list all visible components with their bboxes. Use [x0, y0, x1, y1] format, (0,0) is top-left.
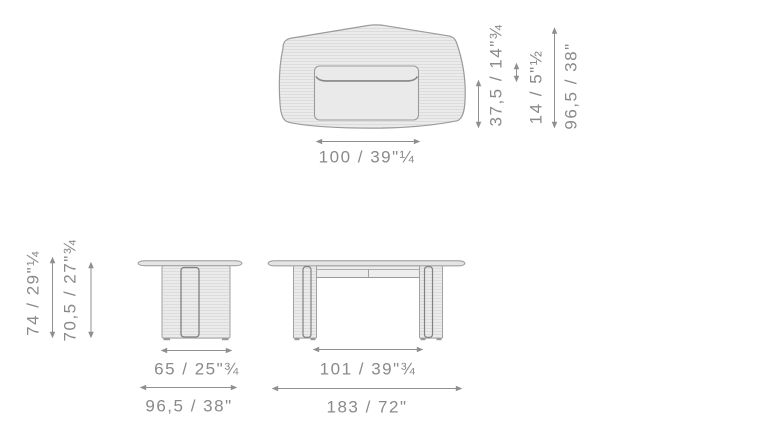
- leg-side-left: [294, 266, 317, 338]
- dim-label-base-width: 65 / 25"¾: [154, 361, 240, 378]
- foot-front-left: [164, 338, 171, 340]
- drawer-plan-outline: [315, 66, 419, 120]
- foot-front-right: [222, 338, 229, 340]
- dim-label-top-depth: 96,5 / 38": [563, 42, 580, 129]
- side-view-drawing: [268, 261, 465, 341]
- dim-label-front-clearance: 70,5 / 27"¾: [62, 239, 79, 342]
- foot-side-left-b: [311, 338, 316, 340]
- dim-label-top-width: 100 / 39"¼: [319, 149, 416, 166]
- dim-label-front-top-width: 96,5 / 38": [145, 398, 232, 415]
- dim-label-length: 183 / 72": [327, 399, 408, 416]
- foot-side-right-b: [437, 338, 442, 340]
- dimension-drawing-sheet: 100 / 39"¼ 37,5 / 14"¾ 14 / 5"½ 96,5 / 3…: [0, 0, 768, 442]
- pedestal-base-front: [162, 266, 230, 338]
- dim-label-edge-offset: 14 / 5"½: [528, 50, 545, 125]
- apron-side: [317, 266, 420, 278]
- dim-label-inner-span: 101 / 39"¾: [320, 361, 417, 378]
- dim-label-front-height: 74 / 29"¼: [25, 250, 42, 336]
- tabletop-front-profile: [138, 261, 242, 266]
- dim-label-drawer-depth: 37,5 / 14"¾: [488, 24, 505, 127]
- tabletop-side-profile: [268, 261, 465, 266]
- foot-side-right-a: [421, 338, 426, 340]
- top-view-drawing: [279, 25, 465, 128]
- foot-side-left-a: [295, 338, 300, 340]
- leg-side-right: [420, 266, 443, 338]
- front-view-drawing: [138, 261, 242, 340]
